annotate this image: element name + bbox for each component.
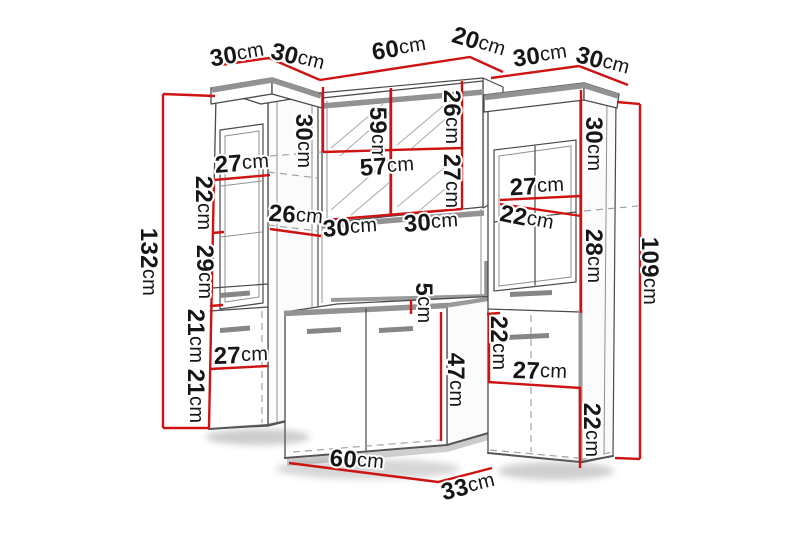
dimension-unit: cm: [241, 343, 269, 366]
right-cabinet: [484, 83, 638, 463]
dimension-value: 30: [403, 209, 432, 238]
dimension-value: 22: [579, 403, 606, 430]
dimension-unit: cm: [386, 153, 415, 177]
dimension-label-mirror-cabinet-20: 20cm: [449, 21, 509, 63]
dimension-label-right-cabinet-30: 30cm: [581, 117, 608, 172]
dimension-value: 47: [443, 353, 470, 380]
left-cabinet-shadow: [206, 429, 310, 445]
dimension-unit: cm: [413, 296, 435, 323]
dimension-value: 60: [370, 35, 401, 66]
dimension-label-left-cabinet-132: 132cm: [136, 228, 163, 296]
dimension-unit: cm: [241, 150, 270, 174]
dimension-label-mirror-cabinet-60: 60cm: [370, 30, 428, 65]
dimension-label-right-cabinet-22: 22cm: [579, 403, 606, 458]
dimension-label-left-cabinet-27: 27cm: [213, 341, 268, 370]
dimension-label-left-cabinet-22: 22cm: [191, 176, 218, 231]
dimension-unit: cm: [138, 269, 160, 296]
dimension-unit: cm: [445, 380, 467, 407]
dimension-value: 28: [581, 229, 608, 256]
dimension-unit: cm: [540, 360, 568, 383]
right-cabinet-shadow: [498, 462, 614, 480]
dimension-value: 57: [359, 153, 388, 182]
dimension-unit: cm: [193, 203, 215, 230]
dimension-label-left-cabinet-30: 30cm: [208, 36, 266, 72]
dimension-unit: cm: [194, 272, 216, 299]
dimension-value: 22: [486, 316, 513, 343]
dimension-value: 21: [183, 369, 210, 396]
dimension-value: 26: [268, 199, 298, 228]
dimension-unit: cm: [441, 117, 463, 144]
dimension-label-mirror-cabinet-30: 30cm: [322, 212, 378, 243]
dimension-unit: cm: [185, 336, 207, 363]
dimension-unit: cm: [356, 449, 385, 473]
dimension-unit: cm: [185, 396, 207, 423]
dimension-label-right-cabinet-109: 109cm: [637, 237, 664, 305]
dimension-unit: cm: [583, 256, 605, 283]
dimension-value: 27: [439, 154, 466, 181]
dimension-value: 27: [509, 173, 538, 201]
dimension-label-left-cabinet-29: 29cm: [192, 245, 219, 300]
dimension-unit: cm: [488, 343, 510, 370]
dimension-label-mirror-cabinet-30: 30cm: [403, 207, 459, 238]
dimension-label-right-cabinet-27: 27cm: [512, 357, 567, 386]
dimension-label-right-cabinet-22: 22cm: [486, 316, 513, 371]
diagram-canvas: 30cm30cm60cm20cm30cm30cm132cm27cm22cm26c…: [0, 0, 800, 533]
dimension-label-mirror-cabinet-26: 26cm: [439, 90, 466, 145]
dimension-value: 30: [581, 117, 608, 144]
dimension-value: 30: [291, 114, 318, 141]
dimension-unit: cm: [295, 204, 324, 228]
dimension-value: 27: [214, 150, 243, 179]
dimension-unit: cm: [581, 430, 603, 457]
dimension-label-mirror-cabinet-27: 27cm: [439, 154, 466, 209]
dimension-value: 27: [213, 342, 241, 370]
dimension-value: 109: [637, 237, 664, 278]
dimension-unit: cm: [639, 278, 661, 305]
dimension-unit: cm: [600, 50, 632, 78]
dimension-value: 21: [183, 309, 210, 336]
dimension-value: 59: [365, 107, 392, 134]
dimension-label-vanity-cabinet-47: 47cm: [443, 353, 470, 408]
dimension-unit: cm: [295, 46, 327, 74]
dimension-value: 5: [411, 283, 438, 297]
dimension-value: 26: [439, 90, 466, 117]
dimension-value: 27: [512, 357, 540, 385]
dimension-unit: cm: [349, 214, 378, 238]
dimension-unit: cm: [441, 181, 463, 208]
dimension-unit: cm: [583, 144, 605, 171]
dimension-value: 30: [511, 42, 542, 73]
dimension-value: 30: [322, 214, 351, 243]
dimension-label-right-cabinet-30: 30cm: [511, 38, 569, 72]
dimension-label-mirror-cabinet-30: 30cm: [291, 114, 318, 169]
dimension-label-vanity-cabinet-5: 5cm: [411, 283, 438, 324]
dimension-value: 132: [136, 228, 163, 269]
dimension-label-right-cabinet-28: 28cm: [581, 229, 608, 284]
dimension-unit: cm: [536, 174, 564, 197]
dimension-unit: cm: [397, 33, 427, 59]
dimension-unit: cm: [476, 31, 509, 60]
dimension-label-left-cabinet-21: 21cm: [183, 309, 210, 364]
dimension-label-left-cabinet-21: 21cm: [183, 369, 210, 424]
furniture-dimension-diagram: 30cm30cm60cm20cm30cm30cm132cm27cm22cm26c…: [0, 0, 800, 533]
dimension-unit: cm: [430, 209, 459, 233]
dimension-value: 60: [329, 444, 359, 473]
dimension-value: 22: [191, 176, 218, 203]
dimension-unit: cm: [293, 141, 315, 168]
dimension-unit: cm: [538, 40, 568, 66]
dimension-unit: cm: [235, 38, 266, 64]
dimension-value: 29: [192, 245, 219, 272]
